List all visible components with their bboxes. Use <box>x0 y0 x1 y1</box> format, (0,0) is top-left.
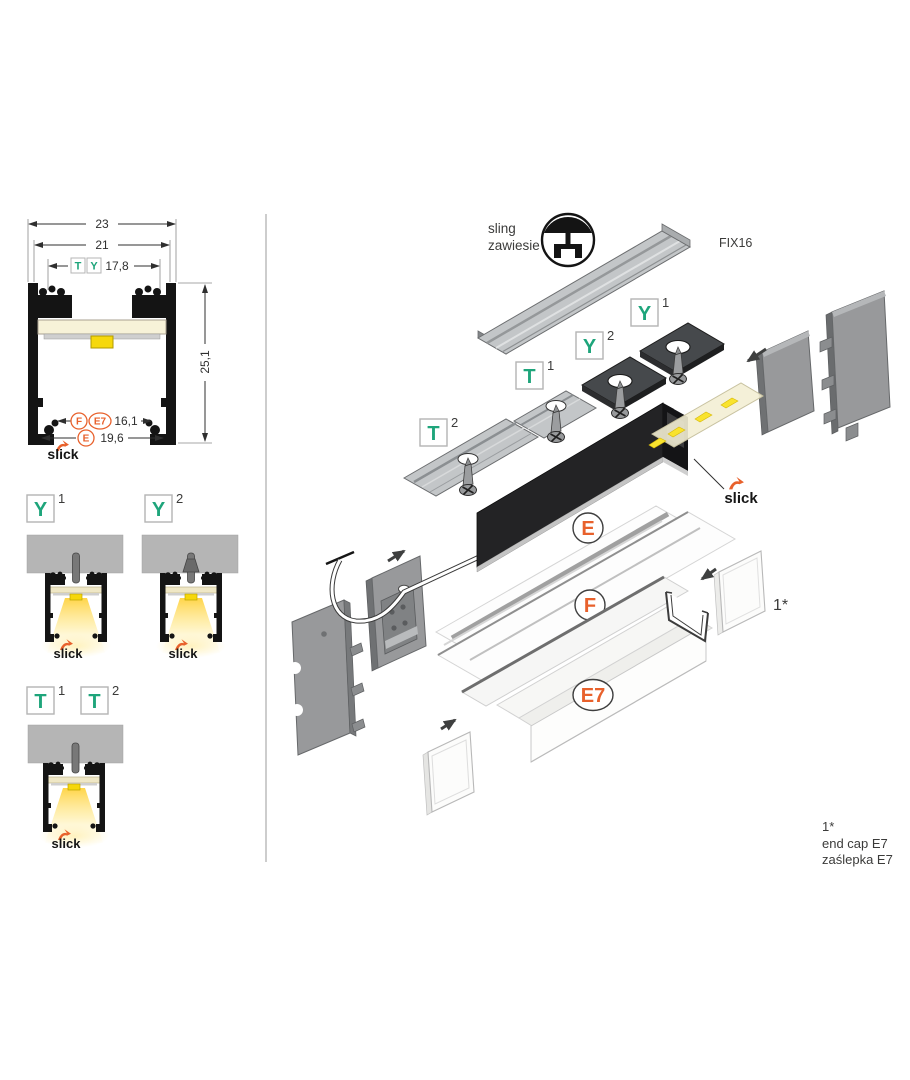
footnote-line1: end cap E7 <box>822 836 888 851</box>
endcap-e-small <box>756 331 814 435</box>
variant-letter-y1: Y <box>638 303 652 325</box>
footnote-ref: 1* <box>822 819 834 834</box>
variant-letter-t2: T <box>427 423 439 445</box>
variant-y-diagrams: Y 1 Y 2 slick slick <box>27 491 238 661</box>
badge-y: Y <box>90 261 98 273</box>
cross-section-drawing: 23 21 T Y 17,8 25,1 <box>28 217 212 462</box>
variant-sup-y1: 1 <box>58 491 65 506</box>
variant-letter-y1: Y <box>34 499 48 521</box>
variant-sup-t1: 1 <box>547 358 554 373</box>
brand-logo: slick <box>47 446 78 462</box>
endcap-white-small <box>423 732 474 815</box>
part-label-e: E <box>581 518 594 540</box>
variant-letter-t1: T <box>34 691 46 713</box>
slick-swoosh-icon <box>729 477 744 489</box>
endcap-left-large <box>289 600 365 755</box>
variant-sup-y2: 2 <box>607 328 614 343</box>
assembly-arrow-small-cap <box>441 720 455 729</box>
variant-sup-t2: 2 <box>451 415 458 430</box>
endcap-e7-white <box>714 551 765 635</box>
variant-letter-y2: Y <box>583 336 597 358</box>
dim-value-inner-width: 21 <box>95 238 109 252</box>
brand-logo: slick <box>54 646 84 661</box>
sling-label-line1: sling <box>488 221 516 236</box>
variant-sup-t2: 2 <box>112 683 119 698</box>
mounting-pin <box>72 743 79 773</box>
endcap-ref-label: 1* <box>773 597 788 614</box>
dim-value-e: 19,6 <box>100 431 124 445</box>
part-label-e7: E7 <box>581 685 605 707</box>
endcap-e-large <box>820 291 890 441</box>
sling-mount-icon <box>542 214 594 266</box>
endcap-power-feed <box>366 556 426 671</box>
footnote-line2: zaślepka E7 <box>822 852 893 867</box>
variant-sup-t1: 1 <box>58 683 65 698</box>
slick-leader-line <box>694 459 724 489</box>
variant-letter-t1: T <box>523 366 535 388</box>
mounting-pin <box>73 553 80 583</box>
technical-diagram-page: 23 21 T Y 17,8 25,1 <box>0 0 910 1080</box>
brand-logo: slick <box>724 490 758 507</box>
dim-value-fe7: 16,1 <box>114 414 138 428</box>
dim-value-ty: 17,8 <box>105 259 129 273</box>
brand-logo: slick <box>52 836 82 851</box>
badge-e7: E7 <box>94 417 107 428</box>
variant-t-diagram: T 1 T 2 slick <box>27 683 123 851</box>
dim-value-outer-width: 23 <box>95 217 109 231</box>
badge-e: E <box>83 434 90 445</box>
badge-f: F <box>76 417 82 428</box>
assembly-arrow-feed-cap <box>388 551 404 561</box>
badge-t: T <box>75 261 82 273</box>
led-module <box>91 336 113 348</box>
footnote: 1* end cap E7 zaślepka E7 <box>822 819 893 867</box>
brand-logo: slick <box>169 646 199 661</box>
variant-sup-y2: 2 <box>176 491 183 506</box>
variant-letter-y2: Y <box>152 499 166 521</box>
diagram-svg: 23 21 T Y 17,8 25,1 <box>0 0 910 1080</box>
variant-letter-t2: T <box>88 691 100 713</box>
variant-sup-y1: 1 <box>662 295 669 310</box>
dim-value-height: 25,1 <box>198 350 212 374</box>
led-shelf <box>38 320 166 334</box>
part-label-f: F <box>584 595 596 617</box>
sling-label-line2: zawiesie <box>488 238 540 253</box>
fix16-label: FIX16 <box>719 236 752 250</box>
exploded-view: sling zawiesie FIX16 <box>289 214 893 867</box>
